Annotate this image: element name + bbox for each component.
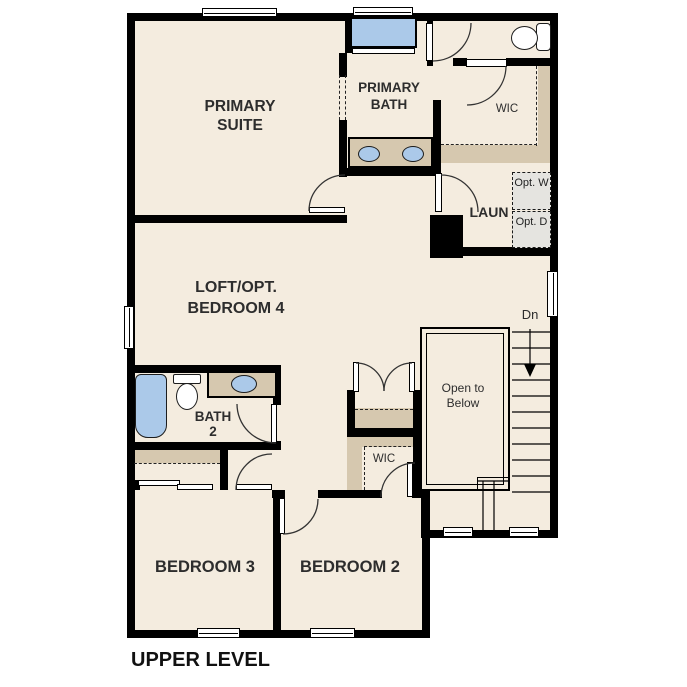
primary-sink-1 — [358, 146, 380, 162]
toilet-bowl-primary — [511, 26, 538, 50]
bedroom3-closet-shelf — [134, 450, 220, 463]
door-leaf-bath2 — [271, 404, 277, 443]
wall-bedroom2-wic-south — [347, 490, 382, 498]
window-stair-bottom-1 — [443, 527, 473, 537]
room-label-bath2: BATH 2 — [192, 409, 234, 439]
shower — [350, 17, 417, 48]
door-leaf-bedroom2 — [279, 498, 285, 534]
door-leaf-bedroom2-wic — [407, 462, 413, 497]
window-primary-suite — [202, 8, 277, 17]
chase-block — [430, 215, 463, 258]
door-leaf-linen-left — [353, 362, 359, 392]
door-leaf-primary-wic — [466, 59, 507, 67]
wall-toilet-room-south-b — [506, 58, 558, 66]
dashed-primary-wic-rod-h — [441, 144, 537, 145]
closet-slider-1 — [138, 480, 180, 486]
wall-primary-suite-east-upper — [339, 53, 347, 77]
wall-laundry-south — [463, 247, 551, 256]
dashed-opening-suite-bath-right — [345, 75, 346, 120]
window-loft-left — [124, 306, 134, 349]
wall-bedroom3-closet-right — [220, 442, 228, 490]
wall-toilet-room-south-a — [453, 58, 467, 66]
room-label-primary-suite: PRIMARY SUITE — [190, 97, 290, 136]
room-label-bedroom2: BEDROOM 2 — [270, 557, 430, 578]
wall-stair-west — [421, 491, 430, 538]
dashed-bedroom2-wic-rod-v — [364, 447, 365, 490]
railing-stair-return — [477, 477, 510, 491]
primary-sink-2 — [402, 146, 424, 162]
bedroom2-wic-shelf-left — [347, 437, 362, 498]
window-bedroom3 — [197, 628, 240, 638]
dashed-bedroom3-closet-rod — [134, 463, 220, 464]
toilet-bowl-bath2 — [176, 383, 198, 410]
dashed-primary-wic-rod-v — [536, 66, 537, 146]
window-stair-right — [547, 271, 558, 317]
bath2-sink — [231, 375, 257, 393]
wall-vanity-south — [340, 168, 440, 176]
optional-washer-label: Opt. W — [514, 177, 548, 189]
room-label-laundry: LAUN — [464, 204, 514, 222]
bathtub — [135, 374, 167, 438]
wall-exterior-bedroom2-right — [422, 530, 430, 638]
toilet-tank-primary — [536, 23, 551, 51]
door-leaf-linen-right — [409, 362, 415, 392]
linen-closet-shelf — [355, 408, 413, 428]
optional-dryer-box: Opt. D — [512, 211, 551, 248]
wall-bath2-south — [127, 442, 281, 450]
open-to-below-label: Open to Below — [438, 381, 488, 410]
window-bedroom2 — [310, 628, 355, 638]
door-leaf-primary-suite — [309, 207, 345, 213]
room-label-primary-wic: WIC — [491, 103, 523, 115]
stair-down-label: Dn — [515, 307, 545, 322]
dashed-bedroom2-wic-rod-h — [364, 446, 411, 447]
wall-primary-wic-west — [433, 100, 441, 176]
floor-plan: Opt. W Opt. D — [0, 0, 687, 687]
room-label-loft: LOFT/OPT. BEDROOM 4 — [171, 277, 301, 319]
room-label-primary-bath: PRIMARY BATH — [349, 80, 429, 114]
optional-washer-box: Opt. W — [512, 172, 551, 210]
window-stair-bottom-2 — [509, 527, 539, 537]
optional-dryer-label: Opt. D — [516, 216, 548, 228]
primary-wic-shelf-bottom — [441, 145, 551, 163]
dashed-linen-shelf — [355, 409, 413, 410]
wall-exterior-top — [127, 13, 558, 21]
plan-title: UPPER LEVEL — [131, 648, 351, 673]
door-leaf-laundry — [435, 173, 442, 212]
closet-slider-2 — [177, 484, 213, 490]
wall-primary-suite-south — [127, 215, 347, 223]
door-leaf-toilet-room — [426, 23, 433, 61]
room-label-bedroom2-wic: WIC — [368, 453, 400, 465]
shower-curb — [352, 48, 415, 54]
dashed-opening-suite-bath-left — [339, 75, 340, 120]
wall-linen-south — [347, 428, 421, 437]
room-label-bedroom3: BEDROOM 3 — [125, 557, 285, 578]
door-leaf-bedroom3 — [236, 484, 272, 490]
window-primary-bath — [353, 7, 413, 16]
